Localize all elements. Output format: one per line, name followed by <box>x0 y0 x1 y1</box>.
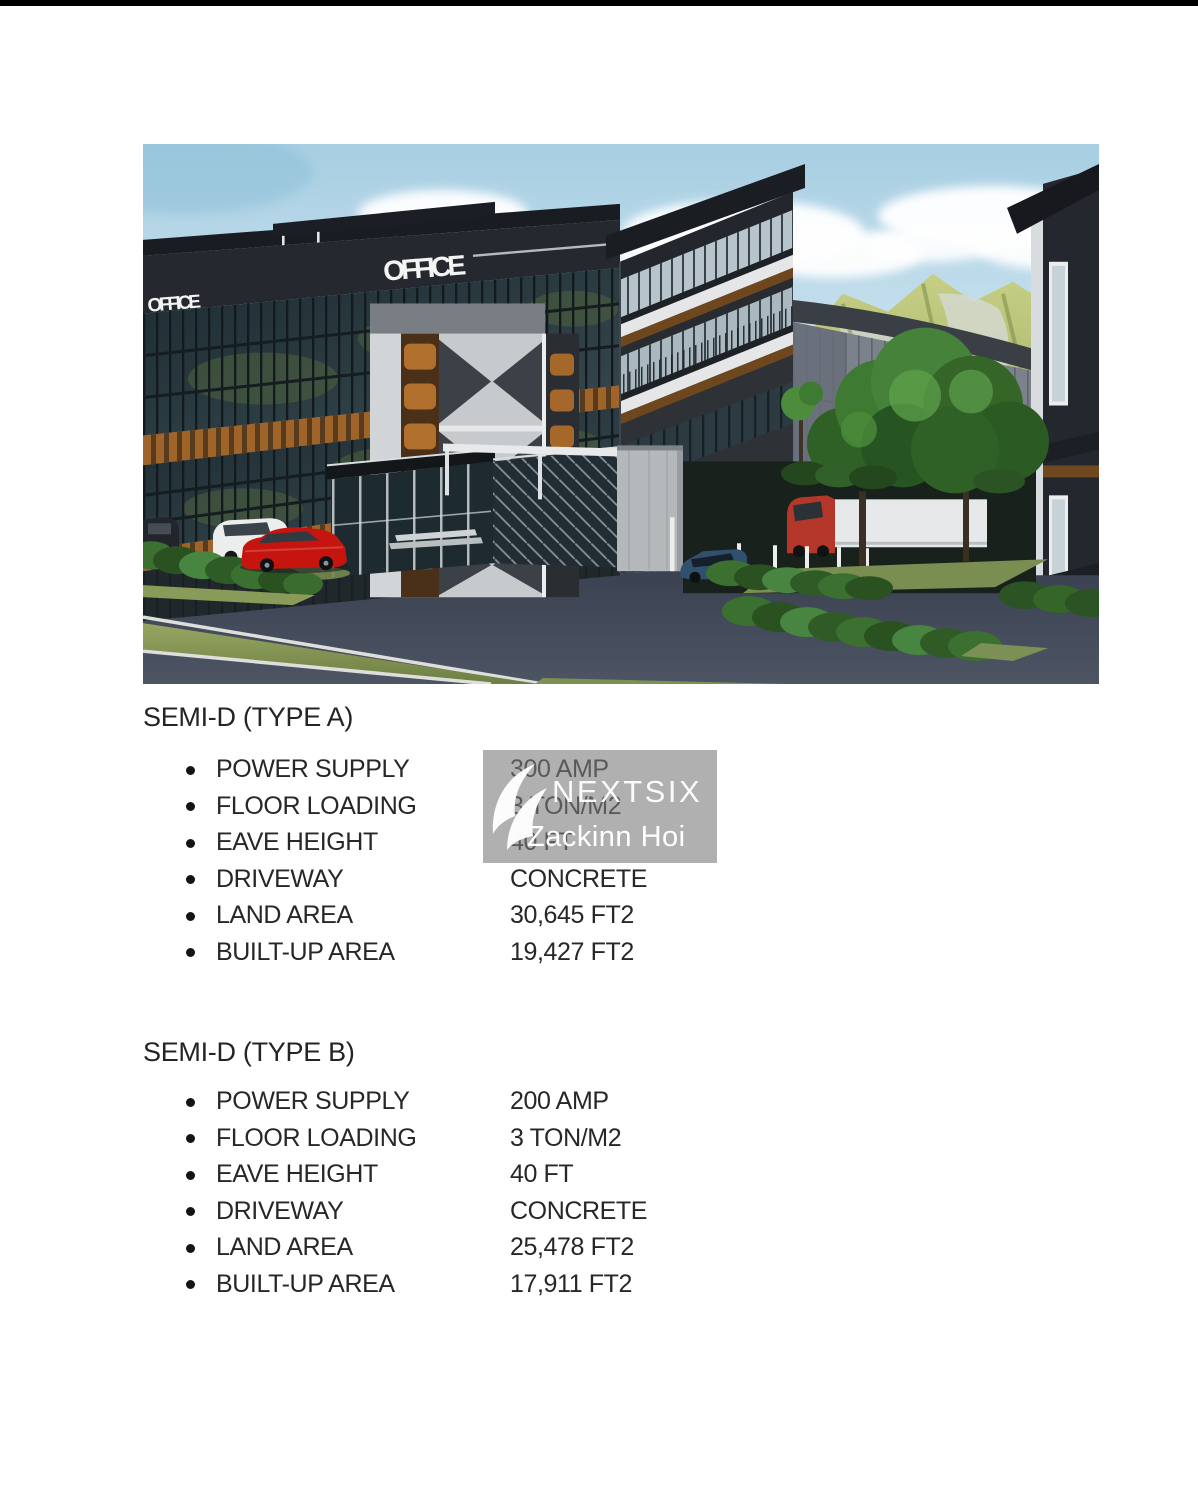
bullet-icon <box>186 912 195 921</box>
spec-value: 40 FT <box>510 1160 573 1189</box>
spec-label: DRIVEWAY <box>216 865 343 894</box>
section-heading-type-b: SEMI-D (TYPE B) <box>143 1037 355 1068</box>
spec-value: 17,911 FT2 <box>510 1270 632 1299</box>
spec-label: POWER SUPPLY <box>216 755 409 784</box>
spec-value: 19,427 FT2 <box>510 938 634 967</box>
watermark-user: Zackinn Hoi <box>527 821 686 854</box>
bullet-icon <box>186 948 195 957</box>
spec-label: EAVE HEIGHT <box>216 1160 378 1189</box>
spec-row: LAND AREA 25,478 FT2 <box>143 1230 783 1267</box>
spec-value: 30,645 FT2 <box>510 901 634 930</box>
spec-row: LAND AREA 30,645 FT2 <box>143 898 783 935</box>
spec-row: DRIVEWAY CONCRETE <box>143 862 783 899</box>
bullet-icon <box>186 1171 195 1180</box>
spec-row: BUILT-UP AREA 19,427 FT2 <box>143 935 783 972</box>
spec-list-type-b: POWER SUPPLY 200 AMP FLOOR LOADING 3 TON… <box>143 1084 783 1303</box>
spec-label: BUILT-UP AREA <box>216 1270 395 1299</box>
spec-row: DRIVEWAY CONCRETE <box>143 1194 783 1231</box>
bullet-icon <box>186 1280 195 1289</box>
svg-text:OFFICE: OFFICE <box>147 291 203 316</box>
spec-label: FLOOR LOADING <box>216 1124 416 1153</box>
bullet-icon <box>186 766 195 775</box>
spec-value: CONCRETE <box>510 865 647 894</box>
entrance-glass <box>327 449 495 577</box>
bullet-icon <box>186 875 195 884</box>
spec-label: DRIVEWAY <box>216 1197 343 1226</box>
watermark: NEXTSIX Zackinn Hoi <box>483 750 717 863</box>
spec-label: LAND AREA <box>216 901 353 930</box>
top-black-bar <box>0 0 1198 6</box>
spec-row: POWER SUPPLY 200 AMP <box>143 1084 783 1121</box>
render-scene: OFFICE OFFICE <box>143 144 1099 684</box>
bullet-icon <box>186 839 195 848</box>
bullet-icon <box>186 802 195 811</box>
spec-label: POWER SUPPLY <box>216 1087 409 1116</box>
spec-value: 25,478 FT2 <box>510 1233 634 1262</box>
spec-label: LAND AREA <box>216 1233 353 1262</box>
spec-label: FLOOR LOADING <box>216 792 416 821</box>
section-heading-type-a: SEMI-D (TYPE A) <box>143 702 353 733</box>
spec-label: EAVE HEIGHT <box>216 828 378 857</box>
bullet-icon <box>186 1098 195 1107</box>
spec-row: EAVE HEIGHT 40 FT <box>143 1157 783 1194</box>
spec-row: BUILT-UP AREA 17,911 FT2 <box>143 1267 783 1304</box>
spec-label: BUILT-UP AREA <box>216 938 395 967</box>
property-render-image: OFFICE OFFICE <box>143 144 1099 684</box>
bullet-icon <box>186 1244 195 1253</box>
spec-value: 3 TON/M2 <box>510 1124 621 1153</box>
bullet-icon <box>186 1207 195 1216</box>
spec-row: FLOOR LOADING 3 TON/M2 <box>143 1121 783 1158</box>
diagonal-screen-wall <box>493 447 617 567</box>
watermark-brand: NEXTSIX <box>552 774 702 810</box>
spec-value: 200 AMP <box>510 1087 609 1116</box>
bullet-icon <box>186 1134 195 1143</box>
spec-value: CONCRETE <box>510 1197 647 1226</box>
office-sign-left: OFFICE <box>147 291 203 316</box>
